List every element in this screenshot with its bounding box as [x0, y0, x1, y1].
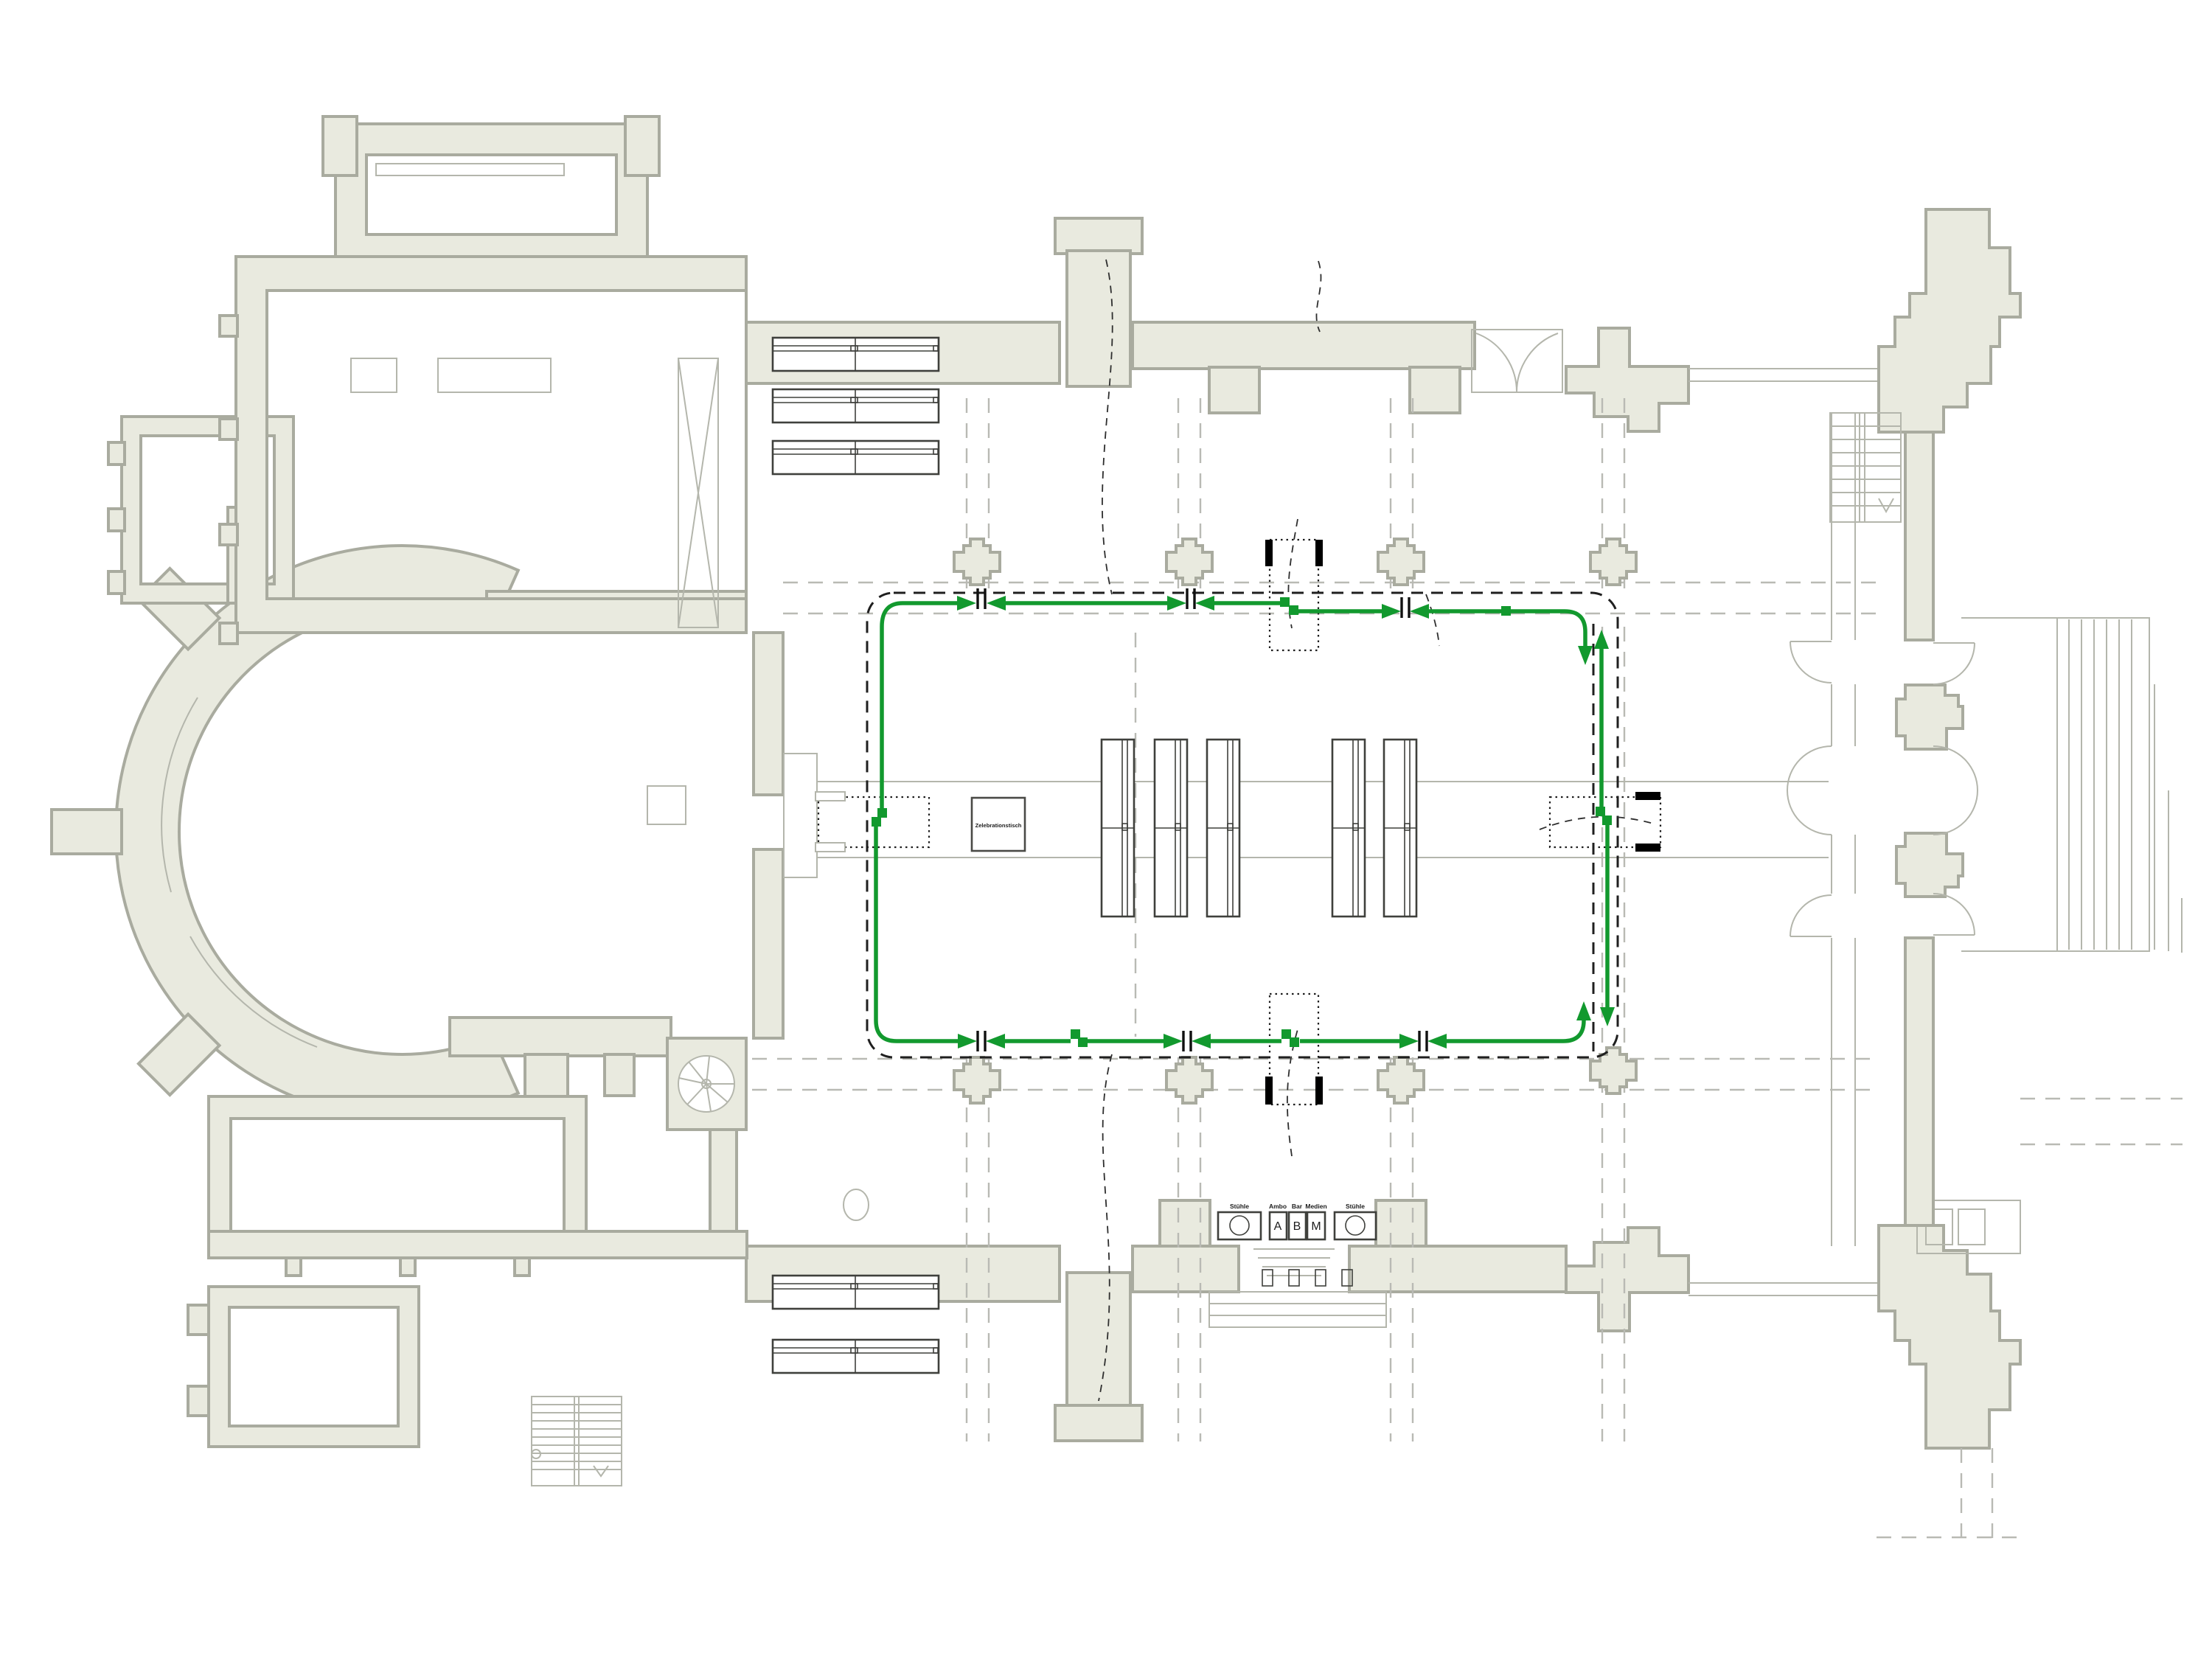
altar-island — [784, 754, 817, 877]
station-ambo: Ambo A — [1269, 1203, 1287, 1239]
spiral-stair — [678, 1056, 734, 1112]
station-bar: Bar B — [1289, 1203, 1306, 1239]
north-pier-mass — [1566, 328, 1688, 431]
chancel-wall-lower — [754, 849, 783, 1038]
north-portal — [1472, 330, 1562, 392]
east-steps — [1961, 618, 2182, 953]
station-stuehle-left: Stühle — [1218, 1203, 1261, 1239]
south-door-box — [1270, 994, 1318, 1105]
south-pier-mass — [1566, 1228, 1688, 1331]
west-table — [647, 786, 686, 824]
east-inner-doors — [1787, 641, 1832, 936]
svg-text:A: A — [1274, 1220, 1282, 1233]
zelebrationstisch-label: Zelebrationstisch — [975, 822, 1022, 829]
south-wall-mid2 — [1349, 1246, 1566, 1292]
svg-text:B: B — [1293, 1220, 1301, 1233]
font-circle — [844, 1189, 869, 1220]
southwest-wing — [209, 1287, 419, 1447]
east-pier-upper — [1896, 685, 1963, 749]
svg-text:Bar: Bar — [1292, 1203, 1303, 1210]
northwest-tower — [1067, 251, 1130, 386]
south-wall-mid1 — [1133, 1246, 1239, 1292]
svg-text:Ambo: Ambo — [1269, 1203, 1287, 1210]
svg-text:Stühle: Stühle — [1346, 1203, 1365, 1210]
floor-plan-drawing: Zelebrationstisch Stühle Ambo A Bar B Me… — [0, 0, 2212, 1659]
southeast-tower — [1879, 1225, 2020, 1448]
pillars — [954, 539, 1636, 1103]
station-row: Stühle Ambo A Bar B Medien M Stühle — [1218, 1203, 1376, 1239]
station-stuehle-right: Stühle — [1335, 1203, 1376, 1239]
east-wall-lower — [1905, 938, 1933, 1225]
organ-gallery-brace — [678, 358, 718, 627]
south-aisle-wall-west — [209, 1231, 747, 1258]
east-pier-lower — [1896, 833, 1963, 897]
station-medien: Medien M — [1305, 1203, 1326, 1239]
south-choir-wall — [450, 1018, 671, 1056]
chancel-wall-upper — [754, 633, 783, 795]
southwest-stair — [532, 1397, 622, 1486]
east-wall-upper — [1905, 432, 1933, 640]
southwest-tower — [1067, 1273, 1130, 1408]
north-wall-mid — [1133, 322, 1475, 369]
svg-text:Medien: Medien — [1305, 1203, 1326, 1210]
svg-text:M: M — [1311, 1220, 1321, 1233]
north-door-box — [1270, 540, 1318, 650]
northeast-tower — [1879, 209, 2020, 432]
svg-text:Stühle: Stühle — [1230, 1203, 1249, 1210]
zelebrationstisch-table: Zelebrationstisch — [972, 798, 1025, 851]
east-inner-wall — [1787, 413, 1855, 1246]
page: { "canvas": { "width": 3000, "height": 2… — [0, 0, 2212, 1659]
nave-axis-lines — [817, 782, 1829, 858]
north-chapel — [335, 124, 647, 257]
